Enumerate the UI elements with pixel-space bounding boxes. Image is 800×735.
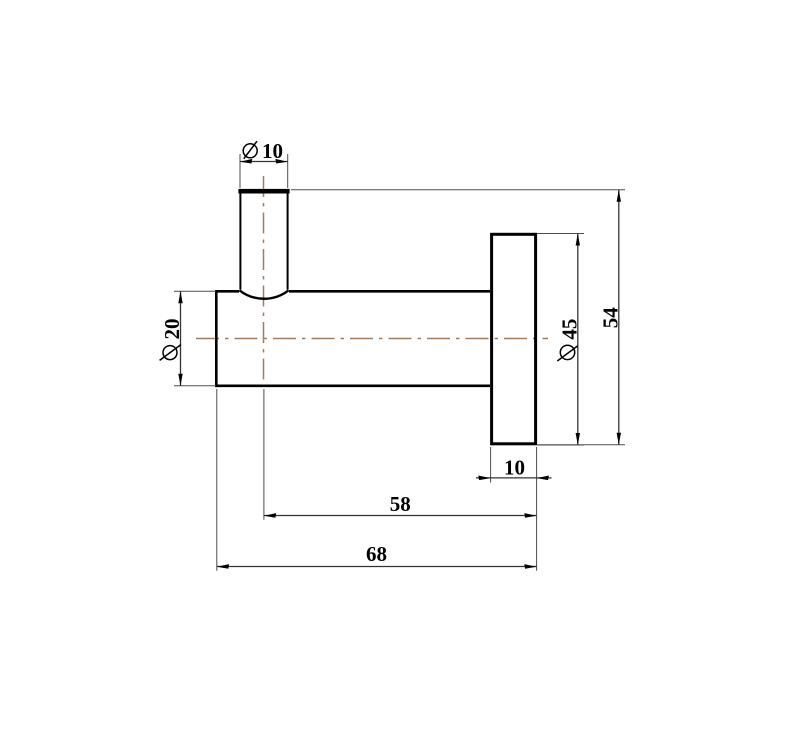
svg-text:54: 54: [598, 307, 622, 329]
svg-text:20: 20: [160, 319, 184, 340]
svg-text:10: 10: [504, 456, 525, 480]
svg-text:68: 68: [366, 542, 387, 566]
svg-text:58: 58: [390, 492, 411, 516]
svg-text:45: 45: [558, 319, 582, 340]
svg-text:10: 10: [262, 139, 283, 163]
